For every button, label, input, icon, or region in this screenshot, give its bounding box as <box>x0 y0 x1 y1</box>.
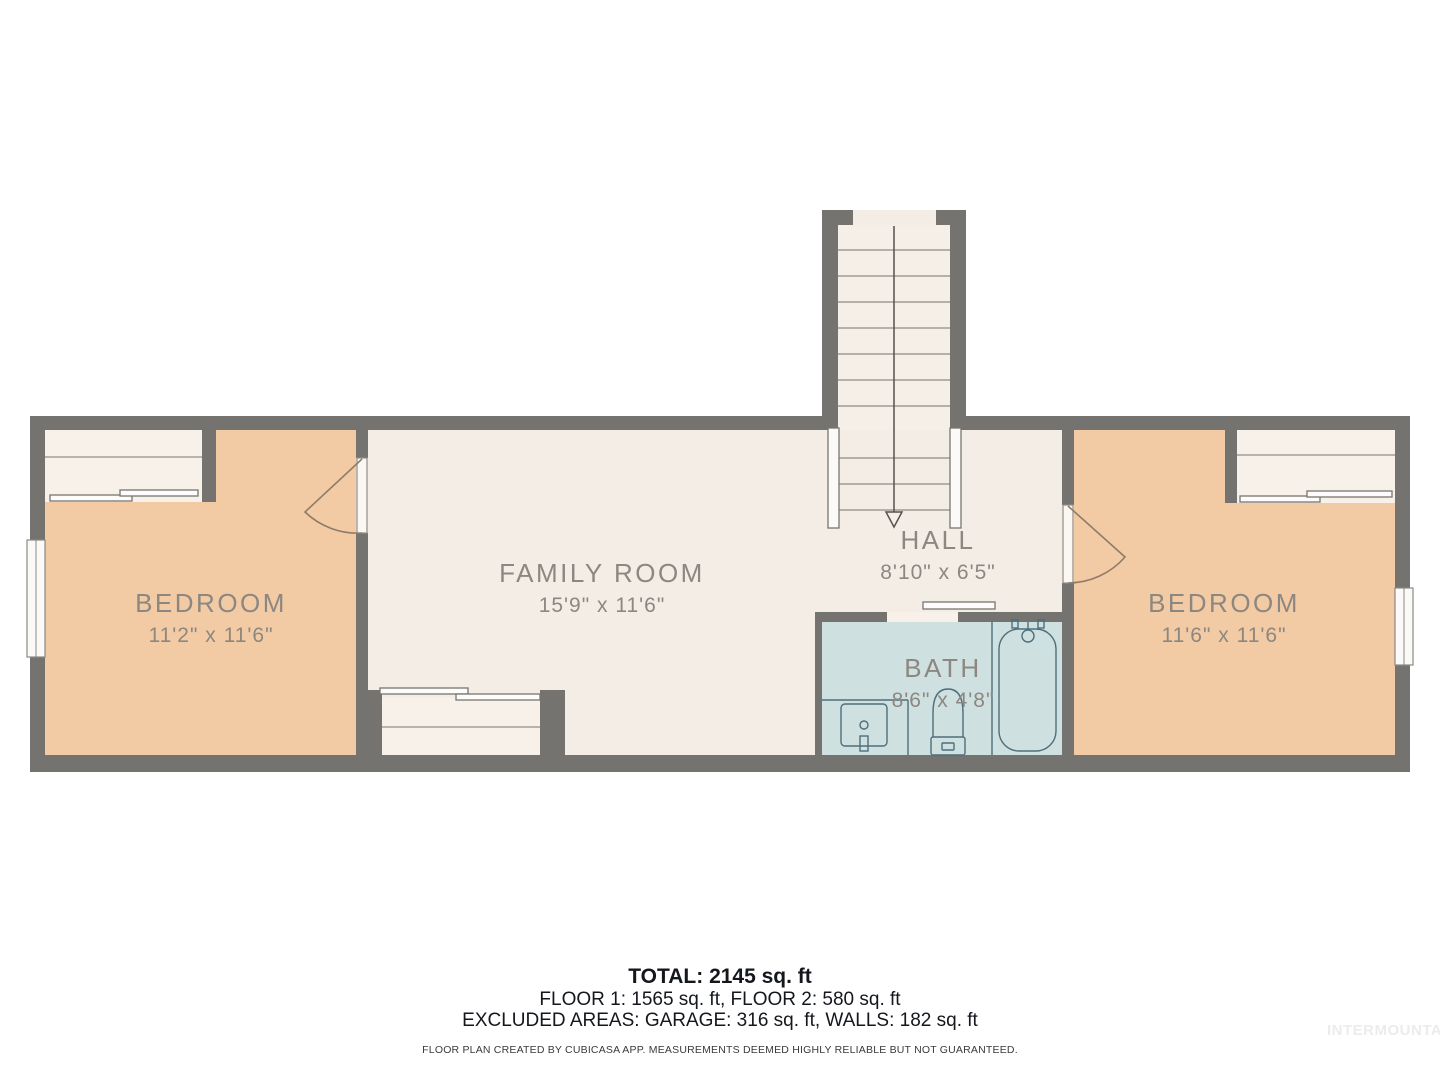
wall-bath-top-b <box>958 612 1062 622</box>
stair-rail-right <box>950 428 961 528</box>
room-name: FAMILY ROOM <box>499 558 705 589</box>
wall-bath-top-a <box>822 612 887 622</box>
floor-plan-drawing <box>0 0 1440 1080</box>
excluded-areas-text: EXCLUDED AREAS: GARAGE: 316 sq. ft, WALL… <box>0 1010 1440 1032</box>
hall-label: HALL 8'10" x 6'5" <box>880 525 996 585</box>
wall-bedroom-left-a <box>356 430 368 458</box>
door-left-leaf <box>357 458 367 533</box>
wall-top-right <box>950 416 1410 430</box>
room-dims: 11'6" x 11'6" <box>1148 624 1300 648</box>
bedroom-right-label: BEDROOM 11'6" x 11'6" <box>1148 588 1300 648</box>
stair-wall-top-left <box>822 210 853 225</box>
room-dims: 15'9" x 11'6" <box>499 594 705 618</box>
wall-closet-family-right <box>540 690 565 755</box>
door-bath-slider <box>923 602 995 609</box>
room-name: BATH <box>892 653 995 684</box>
bedroom-left-label: BEDROOM 11'2" x 11'6" <box>135 588 287 648</box>
total-area-text: TOTAL: 2145 sq. ft <box>0 965 1440 989</box>
room-dims: 11'2" x 11'6" <box>135 624 287 648</box>
wall-closet-left <box>202 430 216 502</box>
stair-wall-right <box>950 210 966 430</box>
door-bath-opening <box>887 612 958 622</box>
closet-family-slider-b <box>456 694 540 700</box>
stair-top-opening <box>853 210 936 225</box>
stair-wall-top-right <box>936 210 966 225</box>
floor-areas-text: FLOOR 1: 1565 sq. ft, FLOOR 2: 580 sq. f… <box>0 989 1440 1011</box>
closet-left-slider-b <box>120 490 198 496</box>
wall-top-left <box>30 416 838 430</box>
stair-wall-left <box>822 210 838 430</box>
closet-family-slider-a <box>380 688 468 694</box>
wall-closet-right <box>1225 430 1237 503</box>
room-fills <box>45 210 1395 755</box>
wall-bedroom-right-a <box>1062 430 1074 505</box>
room-name: BEDROOM <box>135 588 287 619</box>
bath-label: BATH 8'6" x 4'8" <box>892 653 995 713</box>
door-right-leaf <box>1063 505 1073 583</box>
room-name: HALL <box>880 525 996 556</box>
room-name: BEDROOM <box>1148 588 1300 619</box>
wall-bath-left <box>815 612 822 755</box>
disclaimer-text: FLOOR PLAN CREATED BY CUBICASA APP. MEAS… <box>0 1044 1440 1056</box>
stair-rail-left <box>828 428 839 528</box>
wall-bedroom-right-b <box>1062 583 1074 755</box>
wall-bottom <box>30 755 1410 772</box>
room-dims: 8'6" x 4'8" <box>892 689 995 713</box>
floor-plan-page: BEDROOM 11'2" x 11'6" FAMILY ROOM 15'9" … <box>0 0 1440 1080</box>
family-room-label: FAMILY ROOM 15'9" x 11'6" <box>499 558 705 618</box>
room-dims: 8'10" x 6'5" <box>880 561 996 585</box>
wall-bedroom-left-b <box>356 533 368 755</box>
wall-closet-family-left <box>368 690 382 755</box>
closet-right-slider-b <box>1307 491 1392 497</box>
intermountain-watermark: INTERMOUNTAIN <box>1327 1022 1440 1039</box>
